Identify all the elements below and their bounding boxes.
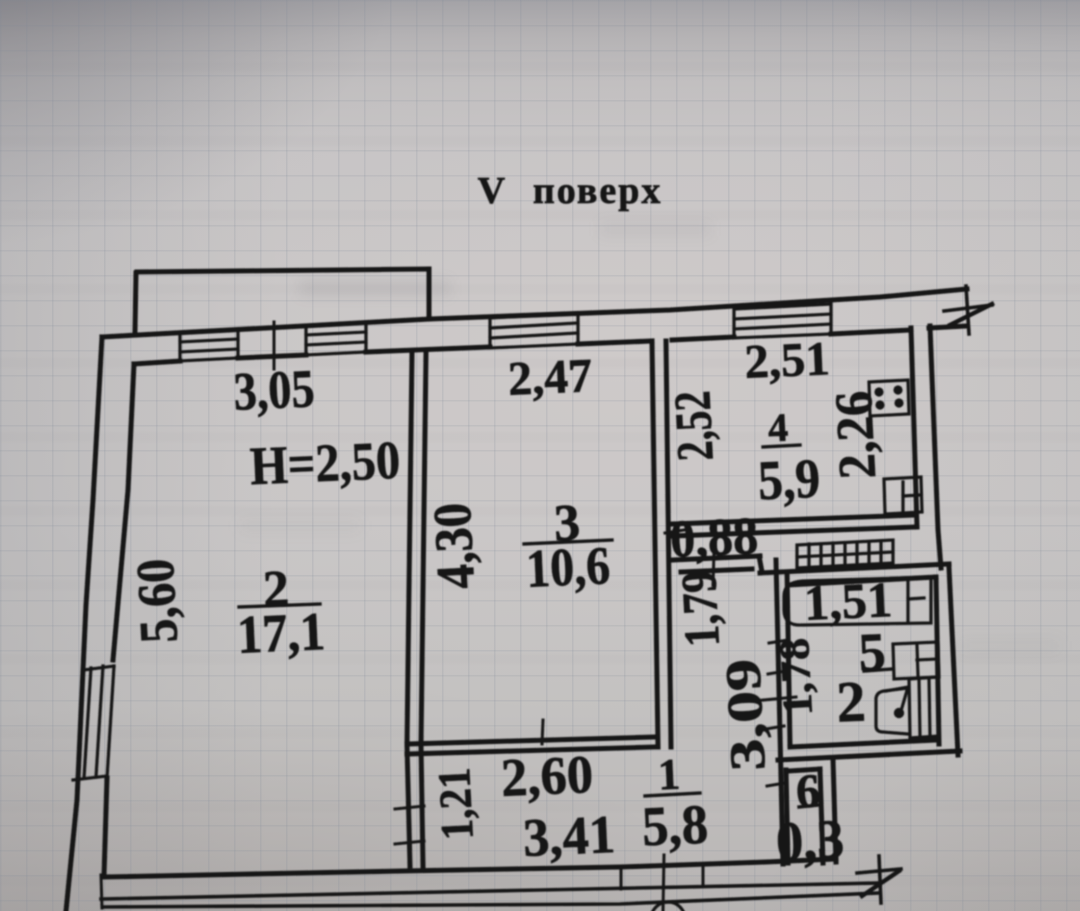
svg-text:1,79: 1,79 [670,570,730,649]
svg-text:1: 1 [657,750,681,800]
svg-text:17,1: 17,1 [236,601,327,665]
svg-text:2,52: 2,52 [664,389,725,462]
svg-text:5,8: 5,8 [641,794,710,859]
svg-text:3,05: 3,05 [232,358,316,421]
svg-text:1,78: 1,78 [772,637,822,717]
svg-text:2,26: 2,26 [825,389,888,480]
svg-text:2,60: 2,60 [500,744,595,808]
svg-text:2: 2 [835,668,867,734]
svg-text:1,21: 1,21 [428,767,483,842]
svg-text:0,3: 0,3 [775,809,846,874]
svg-text:Н=2,50: Н=2,50 [249,430,401,496]
svg-text:0,88: 0,88 [669,507,759,569]
svg-text:4: 4 [767,405,789,451]
svg-text:V поверх: V поверх [478,170,663,212]
svg-text:5,9: 5,9 [757,448,822,513]
svg-text:2,51: 2,51 [743,332,830,389]
svg-text:4,30: 4,30 [422,501,486,590]
svg-text:3,09: 3,09 [714,658,776,773]
svg-text:5,60: 5,60 [125,557,189,644]
svg-text:2,47: 2,47 [507,349,593,406]
svg-text:3,41: 3,41 [522,804,617,868]
